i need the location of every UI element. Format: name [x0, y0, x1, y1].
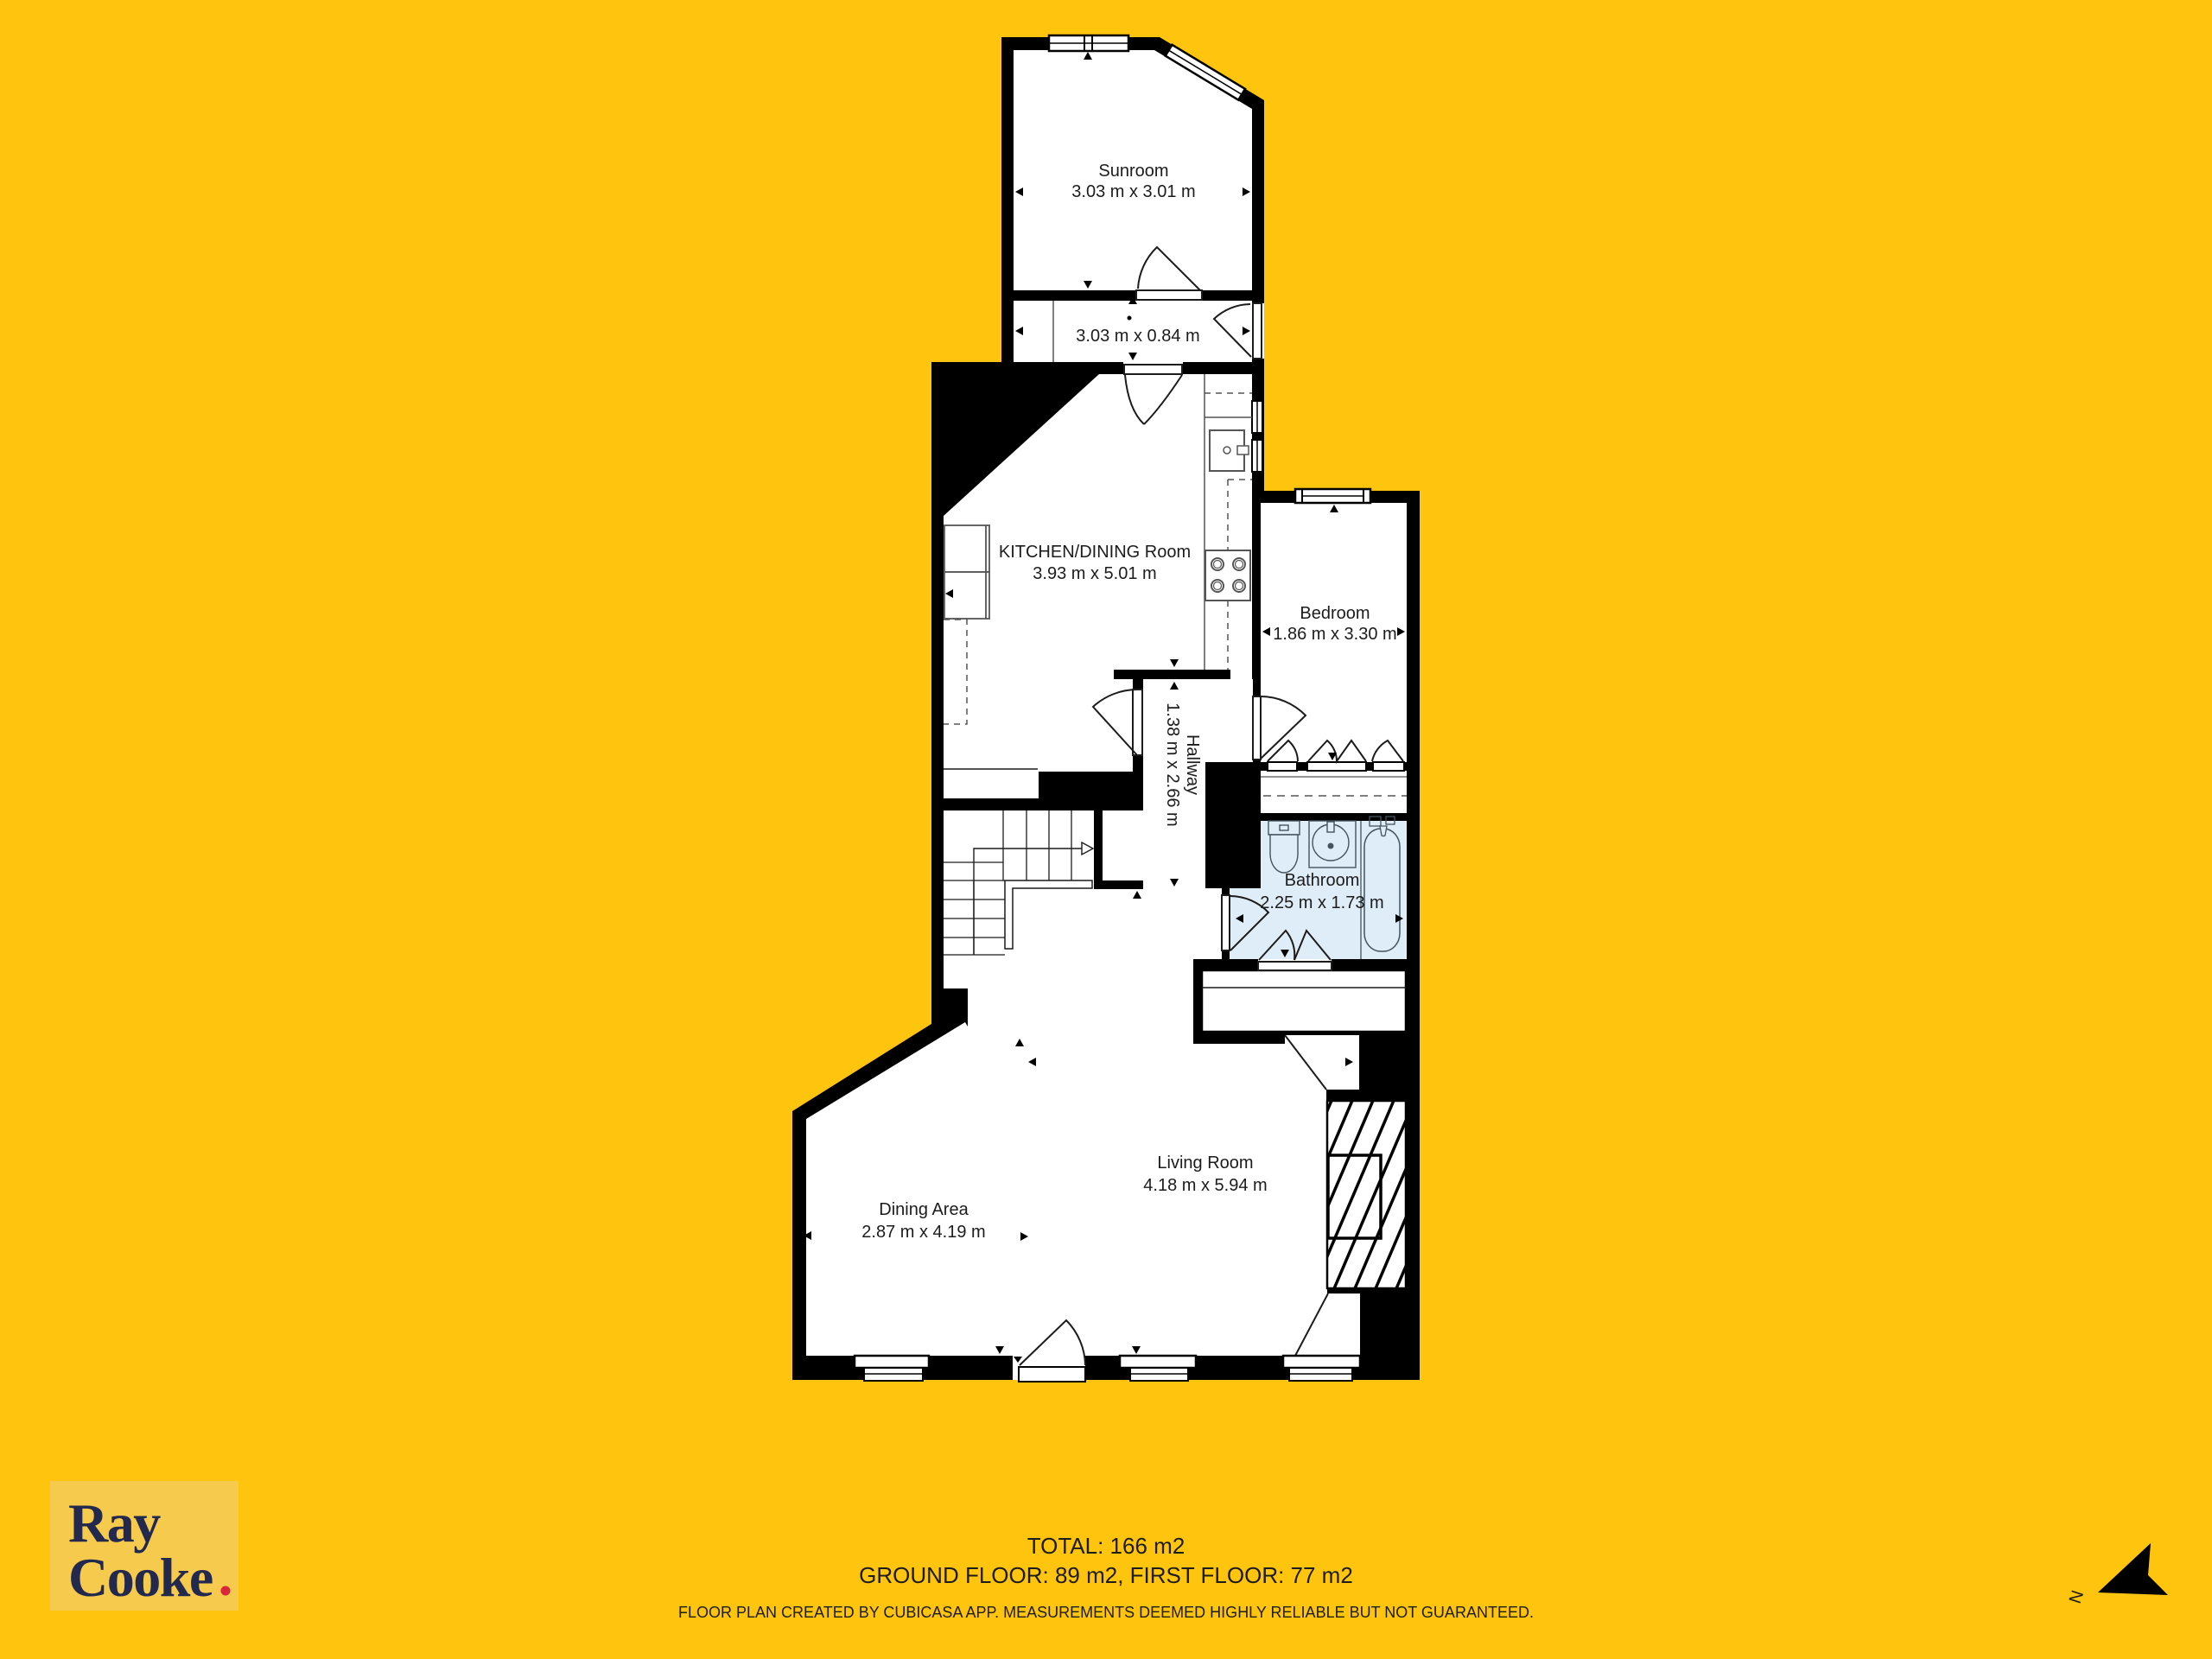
svg-text:Hallway: Hallway	[1183, 734, 1202, 795]
svg-text:Dining Area: Dining Area	[879, 1200, 969, 1219]
svg-text:Bedroom: Bedroom	[1300, 604, 1370, 623]
svg-text:Ray: Ray	[68, 1492, 161, 1554]
svg-text:Cooke: Cooke	[68, 1547, 213, 1608]
svg-text:Bathroom: Bathroom	[1285, 871, 1360, 890]
svg-text:2.25 m x 1.73 m: 2.25 m x 1.73 m	[1260, 893, 1383, 912]
svg-text:3.93 m x 5.01 m: 3.93 m x 5.01 m	[1033, 564, 1156, 583]
svg-text:1.86 m x 3.30 m: 1.86 m x 3.30 m	[1273, 625, 1396, 644]
svg-text:GROUND FLOOR: 89 m2, FIRST FLO: GROUND FLOOR: 89 m2, FIRST FLOOR: 77 m2	[859, 1562, 1353, 1588]
svg-text:3.03 m x 3.01 m: 3.03 m x 3.01 m	[1071, 182, 1195, 201]
svg-text:1.38 m x 2.66 m: 1.38 m x 2.66 m	[1163, 702, 1182, 826]
svg-text:FLOOR PLAN CREATED BY CUBICASA: FLOOR PLAN CREATED BY CUBICASA APP. MEAS…	[678, 1604, 1534, 1621]
svg-text:2.87 m x 4.19 m: 2.87 m x 4.19 m	[861, 1223, 985, 1242]
svg-text:Living Room: Living Room	[1157, 1154, 1253, 1173]
svg-text:KITCHEN/DINING Room: KITCHEN/DINING Room	[999, 543, 1191, 562]
svg-text:3.03 m x 0.84 m: 3.03 m x 0.84 m	[1076, 327, 1199, 346]
svg-text:4.18 m x 5.94 m: 4.18 m x 5.94 m	[1143, 1176, 1267, 1195]
svg-text:Sunroom: Sunroom	[1098, 162, 1168, 181]
svg-text:TOTAL: 166 m2: TOTAL: 166 m2	[1027, 1533, 1185, 1559]
